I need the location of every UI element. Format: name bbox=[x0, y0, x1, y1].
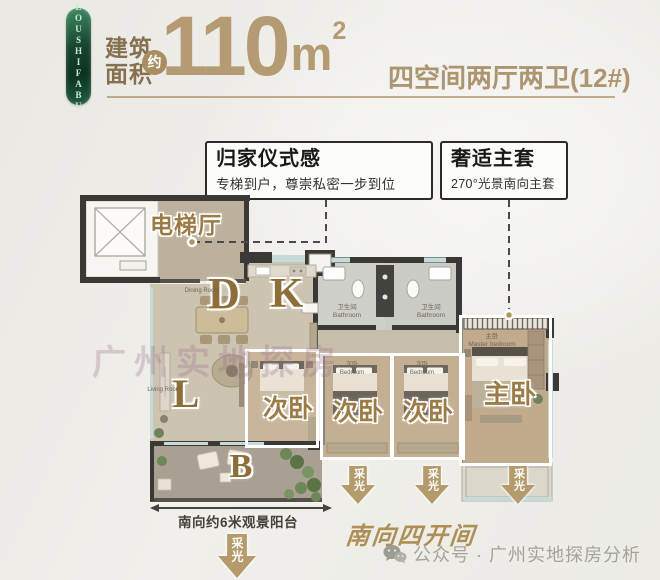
area-exponent: 2 bbox=[332, 19, 346, 44]
bathroom2-label: 卫生间 Bathroom bbox=[410, 304, 452, 321]
balcony-dimension-label: 南向约6米观景阳台 bbox=[160, 511, 316, 531]
brand-ribbon-text: LOUSHIFABU bbox=[74, 2, 84, 112]
master-small-label: 主卧 Master bedroom bbox=[463, 333, 521, 350]
balcony-letter-label: B bbox=[218, 448, 264, 486]
dining-en-label: Dining Room bbox=[184, 288, 220, 296]
daylight-arrow-balcony: 采光 bbox=[218, 534, 256, 578]
callout-master-suite-title: 奢适主套 bbox=[451, 147, 557, 171]
bedroom2-small-label: 次卧 Bedroom bbox=[332, 362, 372, 378]
credit-line: 公众号 · 广州实地探房分析 bbox=[383, 541, 641, 567]
bathroom1-label: 卫生间 Bathroom bbox=[326, 304, 368, 321]
area-value: 110 m 2 bbox=[161, 6, 346, 86]
daylight-arrow-bedroom2: 采光 bbox=[341, 466, 375, 504]
callout-homecoming-title: 归家仪式感 bbox=[216, 147, 422, 171]
bedroom2-label: 次卧 bbox=[328, 392, 388, 428]
wechat-icon bbox=[383, 544, 407, 564]
bedroom1-label: 次卧 bbox=[258, 389, 318, 425]
kitchen-letter-label: K bbox=[263, 270, 311, 318]
living-en-label: Living Room bbox=[146, 387, 182, 395]
page: LOUSHIFABU 建筑 面积 约 110 m 2 四空间两厅两卫(12#) … bbox=[0, 0, 660, 580]
daylight-arrow-master: 采光 bbox=[501, 466, 535, 504]
callout-master-suite: 奢适主套 270°光景南向主套 bbox=[440, 141, 568, 200]
callout-homecoming-desc: 专梯到户，尊崇私密一步到位 bbox=[216, 173, 422, 193]
elevator-hall-label: 电梯厅 bbox=[128, 206, 244, 240]
floorplan bbox=[80, 195, 560, 517]
header-rule bbox=[107, 96, 615, 98]
callout-master-suite-desc: 270°光景南向主套 bbox=[451, 173, 557, 192]
daylight-arrow-bedroom3: 采光 bbox=[415, 466, 449, 504]
area-number: 110 bbox=[161, 6, 288, 86]
layout-spec: 四空间两厅两卫(12#) bbox=[388, 58, 631, 95]
credit-text: 公众号 · 广州实地探房分析 bbox=[413, 541, 641, 567]
connector-dot-master bbox=[505, 311, 513, 319]
bedroom3-small-label: 次卧 Bedroom bbox=[402, 362, 442, 378]
master-bedroom-label: 主卧 bbox=[478, 374, 542, 411]
area-unit: m bbox=[291, 22, 333, 86]
bedroom3-label: 次卧 bbox=[398, 392, 458, 428]
brand-ribbon: LOUSHIFABU bbox=[66, 8, 91, 105]
callout-homecoming: 归家仪式感 专梯到户，尊崇私密一步到位 bbox=[205, 141, 433, 200]
